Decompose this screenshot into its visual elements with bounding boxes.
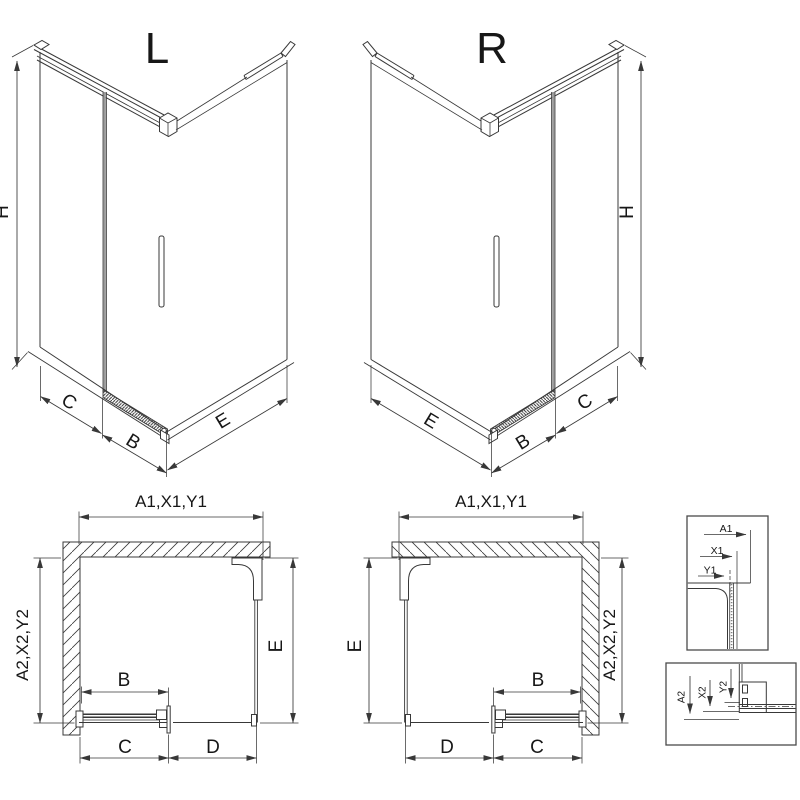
plan-right-dim-bottom-inner: C [530, 737, 544, 758]
iso-view-left [12, 41, 295, 478]
plan-right-dim-top: A1,X1,Y1 [455, 492, 527, 511]
plan-right-dim-door: B [532, 670, 545, 691]
drawing-sheet: L H C B E R H E B C A1,X1,Y1 A2,X2,Y2 E … [0, 0, 800, 800]
iso-right-title: R [476, 24, 508, 73]
iso-left-dim-back: C [58, 390, 81, 415]
plan-right-dim-left: E [345, 640, 366, 653]
plan-right-dim-right: A2,X2,Y2 [600, 609, 619, 681]
plan-left-dim-left: A2,X2,Y2 [13, 609, 32, 681]
plan-view-right [364, 512, 629, 764]
detail-top-dim-y1: Y1 [704, 565, 717, 577]
detail-bottom-dim-a2: A2 [677, 690, 688, 703]
iso-right-dim-door: B [512, 430, 534, 455]
iso-left-dim-height: H [0, 205, 13, 219]
detail-bottom-dim-y2: Y2 [719, 680, 730, 693]
detail-top-dim-x1: X1 [711, 545, 724, 557]
plan-right-dim-bottom-outer: D [440, 737, 454, 758]
detail-view-top-profile [687, 516, 768, 650]
iso-left-dim-side: E [212, 409, 234, 434]
plan-left-dim-bottom-inner: C [118, 737, 132, 758]
iso-right-dim-height: H [617, 205, 638, 219]
detail-bottom-dim-x2: X2 [698, 686, 709, 699]
detail-top-dim-a1: A1 [720, 523, 733, 535]
detail-profile-inner [688, 589, 728, 650]
iso-left-title: L [145, 24, 169, 73]
iso-left-dim-door: B [122, 430, 144, 455]
plan-left-dim-top: A1,X1,Y1 [135, 492, 207, 511]
shower-enclosure-technical-drawing: L H C B E R H E B C A1,X1,Y1 A2,X2,Y2 E … [0, 0, 800, 800]
plan-left-dim-door: B [118, 670, 131, 691]
plan-left-dim-right: E [266, 640, 287, 653]
plan-left-dim-bottom-outer: D [206, 737, 220, 758]
plan-view-left [34, 512, 299, 764]
iso-view-right [363, 41, 646, 478]
